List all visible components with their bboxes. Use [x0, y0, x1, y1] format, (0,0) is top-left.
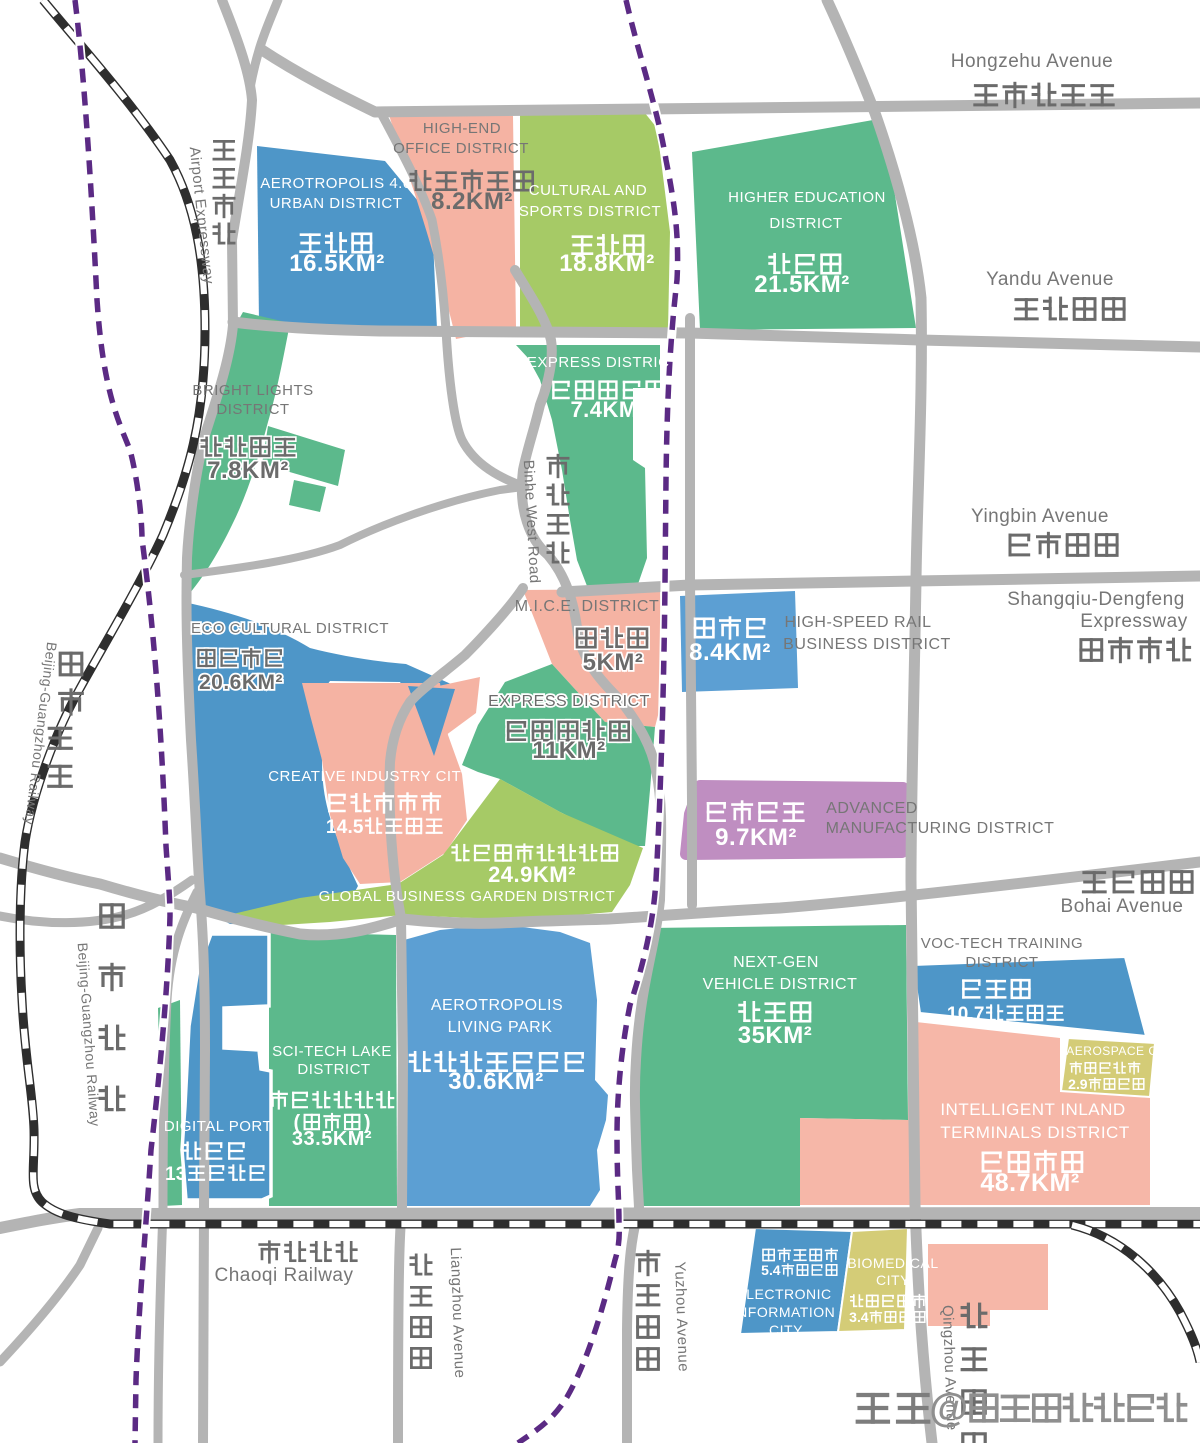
- svg-text:VOC-TECH TRAINING: VOC-TECH TRAINING: [921, 935, 1083, 952]
- svg-text:7: 7: [974, 1004, 985, 1025]
- svg-text:48.7KM²: 48.7KM²: [980, 1169, 1079, 1197]
- svg-text:9.7KM²: 9.7KM²: [715, 824, 797, 851]
- svg-text:EXPRESS DISTRICT: EXPRESS DISTRICT: [488, 693, 650, 710]
- svg-text:CITY: CITY: [876, 1272, 910, 1288]
- svg-text:M.I.C.E. DISTRICT: M.I.C.E. DISTRICT: [515, 598, 660, 615]
- svg-text:VEHICLE DISTRICT: VEHICLE DISTRICT: [703, 976, 858, 993]
- svg-text:LIVING PARK: LIVING PARK: [448, 1019, 553, 1036]
- svg-text:OFFICE DISTRICT: OFFICE DISTRICT: [393, 140, 529, 157]
- svg-text:NEXT-GEN: NEXT-GEN: [733, 954, 819, 971]
- svg-text:3: 3: [176, 1164, 187, 1185]
- svg-text:DISTRICT: DISTRICT: [965, 954, 1038, 971]
- svg-text:4: 4: [861, 1309, 869, 1325]
- svg-text:Expressway: Expressway: [1080, 611, 1187, 632]
- svg-text:SCI-TECH LAKE: SCI-TECH LAKE: [272, 1043, 392, 1060]
- svg-text:9: 9: [1080, 1076, 1088, 1092]
- svg-text:4: 4: [337, 817, 348, 838]
- svg-text:Hongzehu Avenue: Hongzehu Avenue: [951, 51, 1113, 72]
- svg-text:ECO CULTURAL DISTRICT: ECO CULTURAL DISTRICT: [191, 620, 389, 637]
- svg-text:MANUFACTURING DISTRICT: MANUFACTURING DISTRICT: [826, 820, 1055, 837]
- svg-text:CREATIVE INDUSTRY CITY: CREATIVE INDUSTRY CITY: [268, 768, 472, 785]
- svg-text:BUSINESS DISTRICT: BUSINESS DISTRICT: [783, 636, 951, 653]
- svg-text:11KM²: 11KM²: [532, 737, 605, 764]
- svg-text:EXPRESS DISTRICT: EXPRESS DISTRICT: [527, 354, 679, 371]
- svg-text:DISTRICT: DISTRICT: [769, 215, 842, 232]
- svg-text:1: 1: [165, 1164, 176, 1185]
- svg-text:CULTURAL AND: CULTURAL AND: [529, 182, 648, 199]
- svg-text:0: 0: [958, 1004, 969, 1025]
- svg-text:35KM²: 35KM²: [738, 1022, 813, 1049]
- svg-text:AEROTROPOLIS: AEROTROPOLIS: [431, 997, 563, 1014]
- svg-text:ADVANCED: ADVANCED: [826, 800, 918, 817]
- svg-text:BIOMEDICAL: BIOMEDICAL: [847, 1255, 938, 1271]
- svg-text:33.5KM²: 33.5KM²: [292, 1128, 372, 1150]
- svg-text:5: 5: [761, 1262, 769, 1278]
- svg-text:18.8KM²: 18.8KM²: [559, 250, 655, 277]
- svg-text:7.8KM²: 7.8KM²: [207, 457, 289, 484]
- svg-text:DISTRICT: DISTRICT: [297, 1061, 370, 1078]
- svg-text:DISTRICT: DISTRICT: [216, 401, 289, 418]
- svg-text:AEROTROPOLIS 4.0: AEROTROPOLIS 4.0: [260, 175, 411, 192]
- svg-text:8.4KM²: 8.4KM²: [689, 639, 771, 666]
- svg-text:URBAN DISTRICT: URBAN DISTRICT: [270, 195, 403, 212]
- svg-text:Chaoqi Railway: Chaoqi Railway: [214, 1265, 353, 1286]
- svg-text:2: 2: [1068, 1076, 1076, 1092]
- svg-text:AEROSPACE CITY: AEROSPACE CITY: [1066, 1044, 1177, 1058]
- svg-text:DIGITAL PORT: DIGITAL PORT: [164, 1118, 272, 1135]
- svg-text:GLOBAL BUSINESS GARDEN DISTRIC: GLOBAL BUSINESS GARDEN DISTRICT: [319, 888, 616, 905]
- svg-text:Bohai Avenue: Bohai Avenue: [1061, 896, 1184, 917]
- svg-text:20.6KM²: 20.6KM²: [199, 671, 283, 694]
- svg-text:30.6KM²: 30.6KM²: [448, 1068, 544, 1095]
- svg-text:Yandu Avenue: Yandu Avenue: [986, 269, 1114, 290]
- svg-text:HIGHER EDUCATION: HIGHER EDUCATION: [728, 189, 886, 206]
- svg-text:3: 3: [849, 1309, 857, 1325]
- svg-text:Yingbin Avenue: Yingbin Avenue: [971, 506, 1109, 527]
- svg-text:@: @: [929, 1386, 969, 1430]
- svg-text:HIGH-END: HIGH-END: [423, 120, 501, 137]
- svg-text:ELECTRONIC: ELECTRONIC: [736, 1286, 831, 1302]
- svg-text:TERMINALS DISTRICT: TERMINALS DISTRICT: [940, 1123, 1129, 1142]
- svg-text:24.9KM²: 24.9KM²: [488, 862, 576, 887]
- svg-text:Shangqiu-Dengfeng: Shangqiu-Dengfeng: [1007, 589, 1185, 610]
- svg-text:1: 1: [947, 1004, 958, 1025]
- svg-text:16.5KM²: 16.5KM²: [289, 250, 385, 277]
- svg-text:SPORTS DISTRICT: SPORTS DISTRICT: [519, 203, 661, 220]
- svg-text:4: 4: [773, 1262, 781, 1278]
- svg-text:21.5KM²: 21.5KM²: [754, 271, 850, 298]
- svg-text:8.2KM²: 8.2KM²: [431, 188, 513, 215]
- svg-text:BRIGHT LIGHTS: BRIGHT LIGHTS: [192, 382, 313, 399]
- svg-text:5: 5: [353, 817, 364, 838]
- svg-text:HIGH-SPEED RAIL: HIGH-SPEED RAIL: [784, 614, 931, 631]
- svg-text:7.4KM²: 7.4KM²: [570, 397, 645, 422]
- svg-text:INFORMATION: INFORMATION: [733, 1304, 835, 1320]
- svg-text:1: 1: [326, 817, 337, 838]
- svg-text:INTELLIGENT INLAND: INTELLIGENT INLAND: [940, 1100, 1125, 1119]
- svg-text:CITY: CITY: [769, 1322, 803, 1338]
- svg-text:5KM²: 5KM²: [583, 649, 644, 676]
